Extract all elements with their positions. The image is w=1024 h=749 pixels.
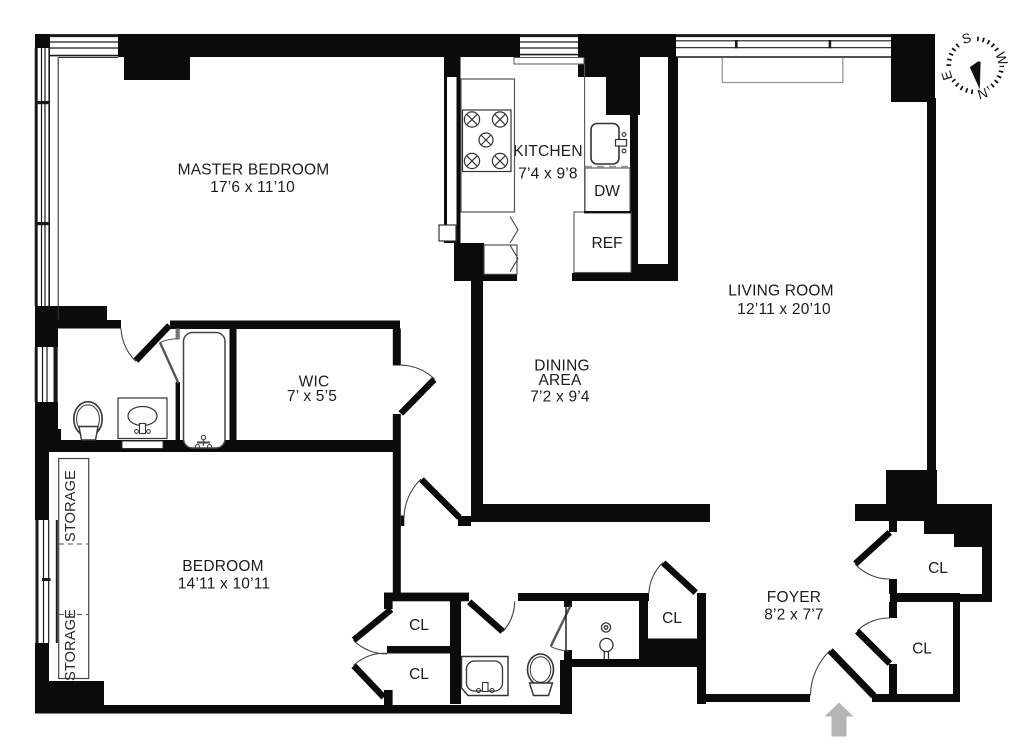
svg-text:7’ x 5’5: 7’ x 5’5 [287,388,337,405]
svg-text:17’6 x 11’10: 17’6 x 11’10 [210,179,295,196]
svg-text:CL: CL [409,617,429,634]
svg-text:CL: CL [409,666,429,683]
svg-text:LIVING ROOM: LIVING ROOM [728,283,834,300]
svg-text:STORAGE: STORAGE [63,470,79,542]
svg-text:CL: CL [912,641,932,658]
svg-text:8’2 x 7’7: 8’2 x 7’7 [764,607,824,624]
svg-text:7’2 x 9’4: 7’2 x 9’4 [530,389,590,406]
svg-text:12’11 x 20’10: 12’11 x 20’10 [737,301,831,318]
svg-text:7’4 x 9’8: 7’4 x 9’8 [518,166,578,183]
svg-text:MASTER BEDROOM: MASTER BEDROOM [178,162,330,179]
svg-text:REF: REF [592,235,623,252]
svg-text:DW: DW [594,183,620,200]
svg-text:FOYER: FOYER [767,589,821,606]
svg-text:14’11 x 10’11: 14’11 x 10’11 [178,576,271,593]
svg-text:KITCHEN: KITCHEN [513,143,582,160]
svg-text:BEDROOM: BEDROOM [182,558,264,575]
svg-text:AREA: AREA [538,372,581,389]
svg-text:CL: CL [928,560,948,577]
svg-text:CL: CL [662,610,682,627]
svg-text:STORAGE: STORAGE [63,609,79,681]
